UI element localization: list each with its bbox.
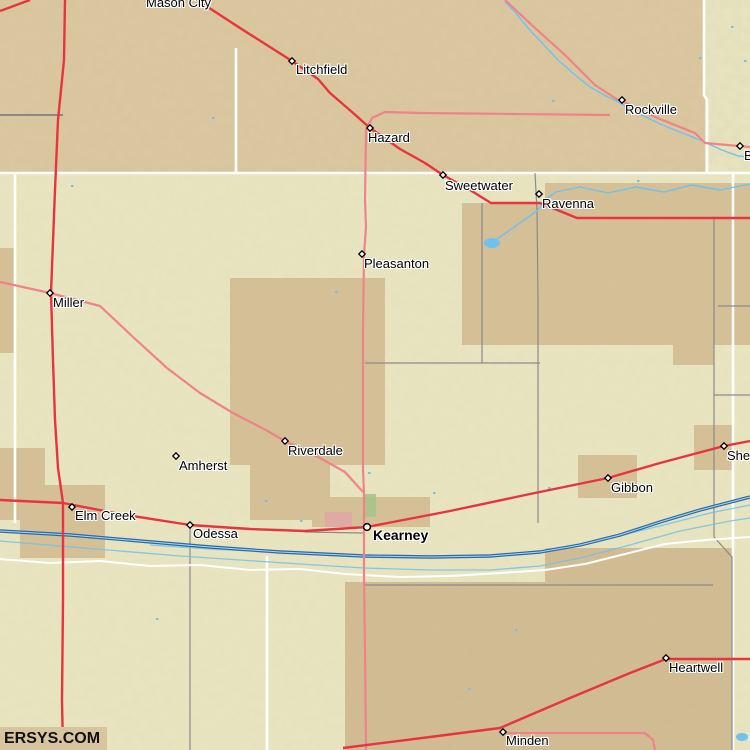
water-speck xyxy=(71,185,74,187)
water-speck xyxy=(368,472,371,474)
map-graphics xyxy=(0,0,750,750)
city-marker-circle xyxy=(364,524,371,531)
water-speck xyxy=(515,629,518,631)
water-speck xyxy=(335,291,338,293)
relief-texture-south xyxy=(0,173,750,750)
water-speck xyxy=(265,500,268,502)
watermark: ERSYS.COM xyxy=(0,727,107,750)
water-speck xyxy=(731,26,734,28)
pond xyxy=(736,733,748,741)
water-speck xyxy=(212,117,215,119)
water-speck xyxy=(552,100,555,102)
water-speck xyxy=(156,618,159,620)
water-speck xyxy=(744,60,747,62)
water-speck xyxy=(637,180,640,182)
water-speck xyxy=(699,57,702,59)
water-speck xyxy=(300,520,303,522)
relief-texture-north xyxy=(0,0,750,173)
water-speck xyxy=(468,688,471,690)
map-canvas: Mason CityLitchfieldHazardRockvilleSweet… xyxy=(0,0,750,750)
pond xyxy=(484,238,500,248)
water-speck xyxy=(433,492,436,494)
